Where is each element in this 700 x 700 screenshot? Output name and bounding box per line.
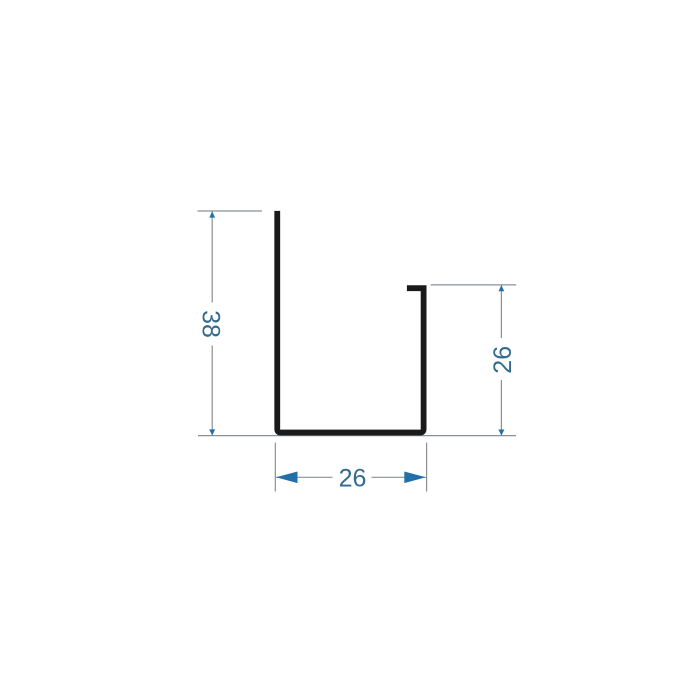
svg-text:26: 26: [339, 464, 367, 492]
svg-text:26: 26: [489, 346, 517, 374]
svg-text:38: 38: [197, 310, 225, 338]
